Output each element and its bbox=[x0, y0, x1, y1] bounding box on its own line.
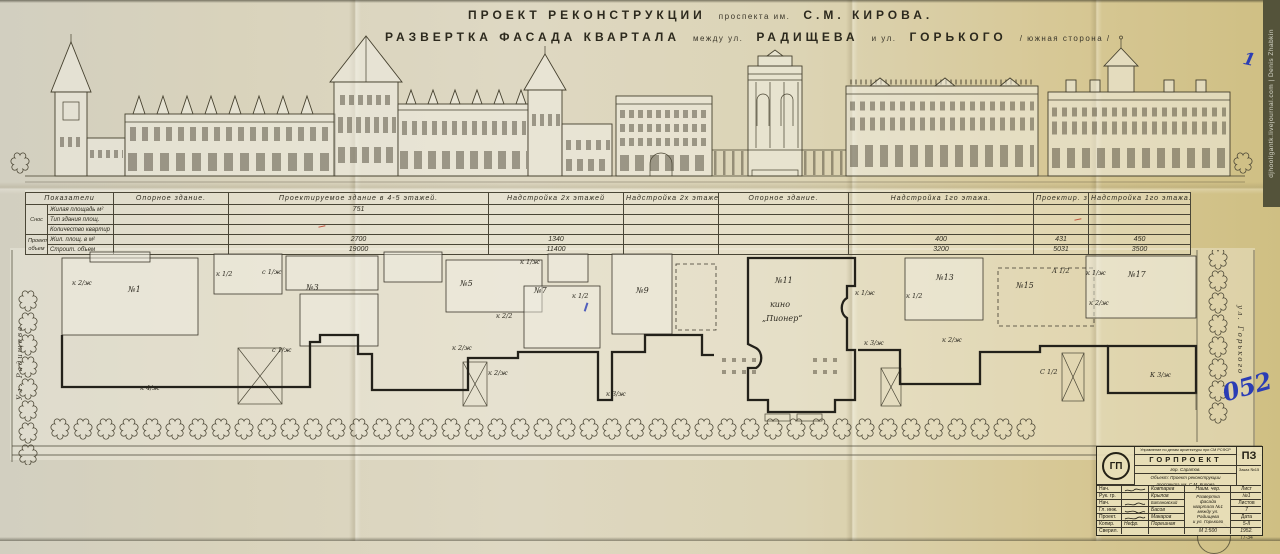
scale-value: М 1:500 bbox=[1185, 527, 1231, 534]
table-cell bbox=[1089, 205, 1191, 215]
tree bbox=[51, 419, 69, 439]
title-main: ПРОЕКТ РЕКОНСТРУКЦИИ bbox=[468, 8, 706, 22]
row-label: Жил. площ. в м² bbox=[48, 235, 114, 245]
building-number: №13 bbox=[935, 273, 954, 282]
row-group-label: Снос bbox=[26, 205, 48, 235]
sheets-label: Листов bbox=[1231, 499, 1261, 506]
tree bbox=[787, 419, 805, 439]
cinema-label: „Пионер“ bbox=[762, 314, 802, 323]
tree bbox=[120, 419, 138, 439]
table-cell bbox=[114, 215, 229, 225]
order-number: Заказ №15 bbox=[1237, 466, 1261, 472]
building-code: к 4/ж bbox=[140, 384, 160, 392]
tree bbox=[580, 419, 598, 439]
org-city: гор. Саратов. bbox=[1135, 466, 1236, 474]
tree bbox=[350, 419, 368, 439]
title-kirova: С.М. КИРОВА. bbox=[803, 8, 933, 22]
person-name: Крылов bbox=[1149, 492, 1185, 499]
sheets-total: 7 bbox=[1231, 506, 1261, 513]
tree bbox=[741, 419, 759, 439]
tree bbox=[143, 419, 161, 439]
building-code: А 1/2 bbox=[1051, 267, 1069, 275]
tree bbox=[442, 419, 460, 439]
table-cell bbox=[624, 235, 719, 245]
signature-cell bbox=[1122, 527, 1149, 534]
table-cell bbox=[1089, 225, 1191, 235]
table-cell bbox=[719, 215, 849, 225]
building-number: №17 bbox=[1127, 270, 1147, 279]
table-cell bbox=[114, 225, 229, 235]
building-code: к 1/ж bbox=[520, 258, 540, 266]
table-row: Проект. объем Жил. площ. в м² 2700 1340 … bbox=[26, 235, 1191, 245]
building-code: к 1/ж bbox=[1086, 269, 1106, 277]
table-cell bbox=[849, 225, 1034, 235]
tree bbox=[718, 419, 736, 439]
building-code: к 1/ж bbox=[855, 289, 875, 297]
cinema-footprint bbox=[748, 258, 855, 412]
site-plan: №1 №3 №5 №7 №9 №11 №13 №15 №17 кино „Пио… bbox=[0, 250, 1280, 465]
table-header-cell: Надстройка 2х этажей bbox=[489, 193, 624, 205]
table-header-cell: Проектируемое здание в 4-5 этажей. bbox=[229, 193, 489, 205]
signature-cell bbox=[1122, 485, 1149, 492]
building-number: №9 bbox=[635, 286, 649, 295]
tree bbox=[19, 291, 37, 311]
object-line-1: Объект: Проект реконструкции bbox=[1135, 474, 1236, 481]
drawing-name-block: Развертка фасада квартала №1 между ул. Р… bbox=[1185, 492, 1231, 527]
building-code: к 2/ж bbox=[488, 369, 508, 377]
tree bbox=[304, 419, 322, 439]
table-cell bbox=[489, 205, 624, 215]
role-label: Копир. bbox=[1097, 520, 1122, 527]
tree bbox=[511, 419, 529, 439]
residential-block-group bbox=[616, 96, 712, 176]
gothic-building-group bbox=[11, 34, 612, 176]
watermark-text: djhooligantk.livejournal.com | Denis Zha… bbox=[1268, 29, 1275, 178]
table-row: Снос Жилая площадь м² 751 bbox=[26, 205, 1191, 215]
building-code: к 1/2 bbox=[216, 270, 232, 278]
drawing-title-line1: ПРОЕКТ РЕКОНСТРУКЦИИ проспекта им. С.М. … bbox=[468, 8, 933, 22]
table-header-cell: Проектир. здан. 4 эт. bbox=[1034, 193, 1089, 205]
person-name: Ковтарев bbox=[1149, 485, 1185, 492]
sheet-label: Лист bbox=[1231, 485, 1261, 492]
signature-cell bbox=[1122, 499, 1149, 506]
photo-edge bbox=[0, 537, 1280, 541]
signature-cell bbox=[1122, 506, 1149, 513]
tree bbox=[902, 419, 920, 439]
signature-cell: Нефр. bbox=[1122, 520, 1149, 527]
table-header-cell: Надстройка 1го этажа. bbox=[1089, 193, 1191, 205]
tree bbox=[1209, 293, 1227, 313]
tree bbox=[994, 419, 1012, 439]
tree bbox=[19, 401, 37, 421]
corner-block bbox=[1108, 346, 1196, 393]
row-label: Тип здания площ. bbox=[48, 215, 114, 225]
table-cell bbox=[1034, 205, 1089, 215]
row-label: Количество квартир bbox=[48, 225, 114, 235]
tree bbox=[879, 419, 897, 439]
building-code: к 2/2 bbox=[496, 312, 512, 320]
table-cell bbox=[229, 215, 489, 225]
tree bbox=[833, 419, 851, 439]
tree bbox=[189, 419, 207, 439]
table-cell bbox=[719, 235, 849, 245]
table-cell bbox=[489, 225, 624, 235]
tree bbox=[1209, 337, 1227, 357]
cinema-label: кино bbox=[770, 300, 790, 309]
building-code: С 1/2 bbox=[1040, 368, 1058, 376]
signature-cell bbox=[1122, 513, 1149, 520]
tree bbox=[856, 419, 874, 439]
table-header-cell: Опорное здание. bbox=[114, 193, 229, 205]
tree bbox=[258, 419, 276, 439]
role-label: Проект. bbox=[1097, 513, 1122, 520]
tree bbox=[373, 419, 391, 439]
table-cell bbox=[624, 215, 719, 225]
table-cell bbox=[849, 215, 1034, 225]
tree bbox=[672, 419, 690, 439]
row-label: Жилая площадь м² bbox=[48, 205, 114, 215]
table-cell bbox=[114, 235, 229, 245]
table-cell bbox=[719, 225, 849, 235]
table-cell bbox=[229, 225, 489, 235]
table-row: Тип здания площ. bbox=[26, 215, 1191, 225]
tree bbox=[764, 419, 782, 439]
archive-number: 77-34 bbox=[1240, 535, 1253, 541]
tree bbox=[925, 419, 943, 439]
facade-elevation bbox=[0, 30, 1280, 188]
person-name: Басов bbox=[1149, 506, 1185, 513]
tree-row-bottom bbox=[51, 419, 1035, 439]
org-name: ГОРПРОЕКТ bbox=[1135, 455, 1236, 466]
building-number: №1 bbox=[127, 285, 141, 294]
tree bbox=[1209, 315, 1227, 335]
table-cell bbox=[849, 205, 1034, 215]
table-header-row: Показатели Опорное здание. Проектируемое… bbox=[26, 193, 1191, 205]
table-cell: 751 bbox=[229, 205, 489, 215]
street-label-gorkogo: ул. Горького bbox=[1236, 304, 1244, 375]
tree bbox=[19, 423, 37, 443]
tree bbox=[212, 419, 230, 439]
tree bbox=[327, 419, 345, 439]
table-row: Количество квартир bbox=[26, 225, 1191, 235]
gate-cross-boxes bbox=[238, 348, 1084, 406]
summary-table: Показатели Опорное здание. Проектируемое… bbox=[25, 192, 1191, 255]
building-code: к 2/ж bbox=[72, 279, 92, 287]
tree bbox=[1209, 359, 1227, 379]
table-cell: 400 bbox=[849, 235, 1034, 245]
doc-code-box: ПЗ Заказ №15 bbox=[1237, 447, 1261, 485]
tree bbox=[948, 419, 966, 439]
building-code: к 2/ж bbox=[942, 336, 962, 344]
tree bbox=[419, 419, 437, 439]
date-label: Дата bbox=[1231, 513, 1261, 520]
sheet-number: №1 bbox=[1231, 492, 1261, 499]
tree bbox=[557, 419, 575, 439]
date-value: 5-II bbox=[1231, 520, 1261, 527]
tree bbox=[11, 153, 29, 173]
doc-code: ПЗ bbox=[1237, 447, 1261, 466]
tree bbox=[971, 419, 989, 439]
tree bbox=[695, 419, 713, 439]
photo-edge bbox=[0, 0, 1280, 3]
tree bbox=[534, 419, 552, 439]
tree bbox=[1209, 403, 1227, 423]
summary-table-wrap: Показатели Опорное здание. Проектируемое… bbox=[25, 192, 1191, 255]
table-cell bbox=[1089, 215, 1191, 225]
scanned-architectural-drawing: { "colors": {"paper":"#dcd5ba","paper_ri… bbox=[0, 0, 1280, 541]
tree bbox=[626, 419, 644, 439]
tree bbox=[166, 419, 184, 439]
building-number: №7 bbox=[533, 286, 548, 295]
title-block: ГП Управление по делам архитектуры при С… bbox=[1096, 446, 1263, 536]
building-code: к 1/2 bbox=[906, 292, 922, 300]
table-cell bbox=[114, 205, 229, 215]
person-name: Макаров bbox=[1149, 513, 1185, 520]
table-cell: 1340 bbox=[489, 235, 624, 245]
table-cell bbox=[624, 225, 719, 235]
building-number: №15 bbox=[1015, 281, 1034, 290]
table-header-cell: Показатели bbox=[26, 193, 114, 205]
table-header-cell: Опорное здание. bbox=[719, 193, 849, 205]
role-label: Нач. сект bbox=[1097, 499, 1122, 506]
table-cell: 431 bbox=[1034, 235, 1089, 245]
building-code: к 1/2 bbox=[572, 292, 588, 300]
table-cell: 450 bbox=[1089, 235, 1191, 245]
org-small-line: Управление по делам архитектуры при СМ Р… bbox=[1135, 447, 1236, 455]
tree bbox=[810, 419, 828, 439]
table-cell bbox=[624, 205, 719, 215]
building-code: с 1/ж bbox=[272, 346, 292, 354]
drawing-name-line: между ул. Радищева bbox=[1187, 509, 1229, 519]
person-name: Батановский bbox=[1149, 499, 1185, 506]
tree bbox=[97, 419, 115, 439]
row-group-label-line: Проект. bbox=[28, 237, 45, 245]
tree bbox=[465, 419, 483, 439]
gorproekt-logo: ГП bbox=[1102, 452, 1130, 480]
table-cell bbox=[719, 205, 849, 215]
building-number: №11 bbox=[774, 276, 793, 285]
tree bbox=[1017, 419, 1035, 439]
tree bbox=[74, 419, 92, 439]
tree bbox=[488, 419, 506, 439]
building-code: к 2/ж bbox=[452, 344, 472, 352]
tree bbox=[649, 419, 667, 439]
drawing-name-line: и ул. Горького bbox=[1187, 519, 1229, 524]
table-header-cell: Надстройка 2х этажей. bbox=[624, 193, 719, 205]
tree bbox=[603, 419, 621, 439]
building-code: К 3/ж bbox=[1149, 371, 1171, 379]
role-label: Нач. С.П. bbox=[1097, 485, 1122, 492]
role-label: Рук. гр. bbox=[1097, 492, 1122, 499]
tree bbox=[1209, 271, 1227, 291]
tree bbox=[1209, 250, 1227, 269]
role-label: Сверил. bbox=[1097, 527, 1122, 534]
tree bbox=[235, 419, 253, 439]
building-code: с 1/ж bbox=[262, 268, 282, 276]
table-cell bbox=[1034, 225, 1089, 235]
building-code: к 3/ж bbox=[864, 339, 884, 347]
tree bbox=[396, 419, 414, 439]
logo-box: ГП bbox=[1097, 447, 1135, 485]
classical-block-right-group bbox=[1048, 36, 1252, 176]
watermark-strip: djhooligantk.livejournal.com | Denis Zha… bbox=[1263, 0, 1280, 207]
signature-cell bbox=[1122, 492, 1149, 499]
table-cell bbox=[489, 215, 624, 225]
role-label: Гл. инж. bbox=[1097, 506, 1122, 513]
drawing-name-header: Наим. чер. bbox=[1185, 485, 1231, 492]
person-name bbox=[1149, 527, 1185, 534]
person-name: Порешная bbox=[1149, 520, 1185, 527]
building-code: к 3/ж bbox=[606, 390, 626, 398]
classical-block-left-group bbox=[846, 78, 1038, 176]
year-value: 1952. bbox=[1231, 527, 1261, 534]
org-header: Управление по делам архитектуры при СМ Р… bbox=[1135, 447, 1237, 485]
cinema-portal-group bbox=[712, 50, 846, 176]
building-code: к 2/ж bbox=[1089, 299, 1109, 307]
table-cell: 2700 bbox=[229, 235, 489, 245]
building-number: №3 bbox=[305, 283, 319, 292]
building-number: №5 bbox=[459, 279, 473, 288]
tree bbox=[19, 313, 37, 333]
table-header-cell: Надстройка 1го этажа. bbox=[849, 193, 1034, 205]
title-sub: проспекта им. bbox=[719, 12, 791, 22]
tree bbox=[1234, 153, 1252, 173]
tree bbox=[281, 419, 299, 439]
